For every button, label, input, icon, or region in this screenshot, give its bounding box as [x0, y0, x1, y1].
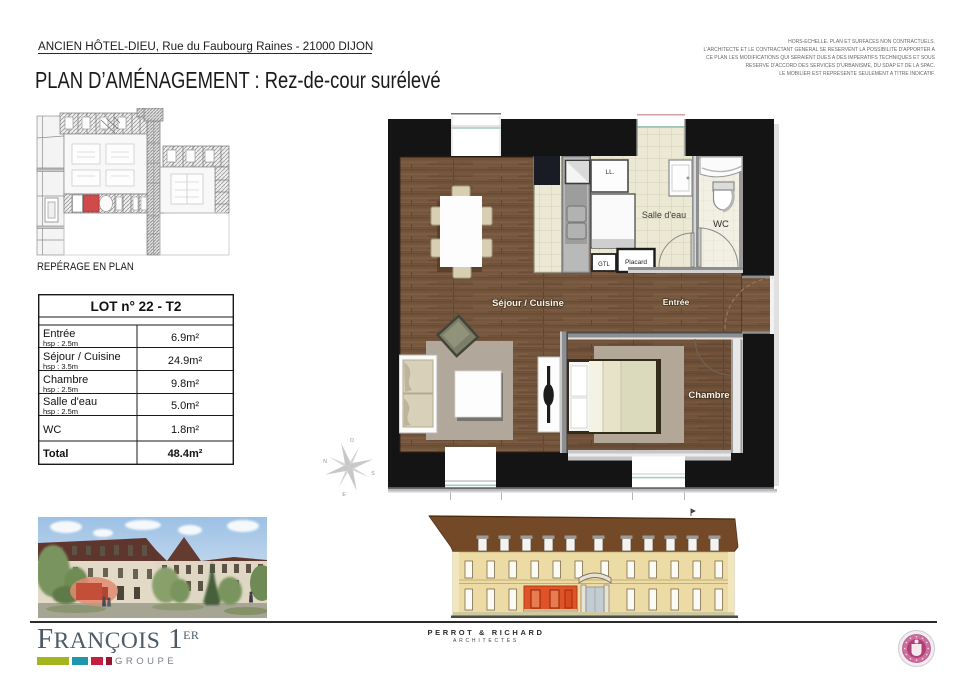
svg-text:LL.: LL. [605, 169, 614, 176]
svg-text:hsp : 2.5m: hsp : 2.5m [43, 407, 78, 416]
svg-text:hsp : 2.5m: hsp : 2.5m [43, 385, 78, 394]
svg-text:Total: Total [43, 448, 68, 460]
svg-text:E: E [342, 492, 346, 498]
svg-text:LOT n° 22 - T2: LOT n° 22 - T2 [91, 299, 182, 314]
svg-text:N: N [323, 459, 327, 465]
svg-text:Placard: Placard [625, 259, 647, 266]
svg-text:WC: WC [713, 219, 729, 230]
svg-text:Salle d'eau: Salle d'eau [642, 210, 686, 220]
svg-text:Chambre: Chambre [688, 390, 729, 401]
svg-text:9.8m²: 9.8m² [171, 378, 199, 390]
svg-text:WC: WC [43, 424, 61, 436]
svg-text:48.4m²: 48.4m² [168, 448, 203, 460]
svg-text:1.8m²: 1.8m² [171, 424, 199, 436]
svg-text:5.0m²: 5.0m² [171, 400, 199, 412]
svg-text:S: S [371, 471, 375, 477]
svg-text:6.9m²: 6.9m² [171, 332, 199, 344]
svg-text:hsp : 3.5m: hsp : 3.5m [43, 362, 78, 371]
svg-text:Séjour / Cuisine: Séjour / Cuisine [492, 298, 564, 309]
svg-text:O: O [350, 438, 354, 444]
svg-text:hsp : 2.5m: hsp : 2.5m [43, 339, 78, 348]
svg-text:GTL: GTL [598, 262, 610, 268]
svg-text:24.9m²: 24.9m² [168, 355, 203, 367]
svg-text:Entrée: Entrée [663, 297, 690, 307]
